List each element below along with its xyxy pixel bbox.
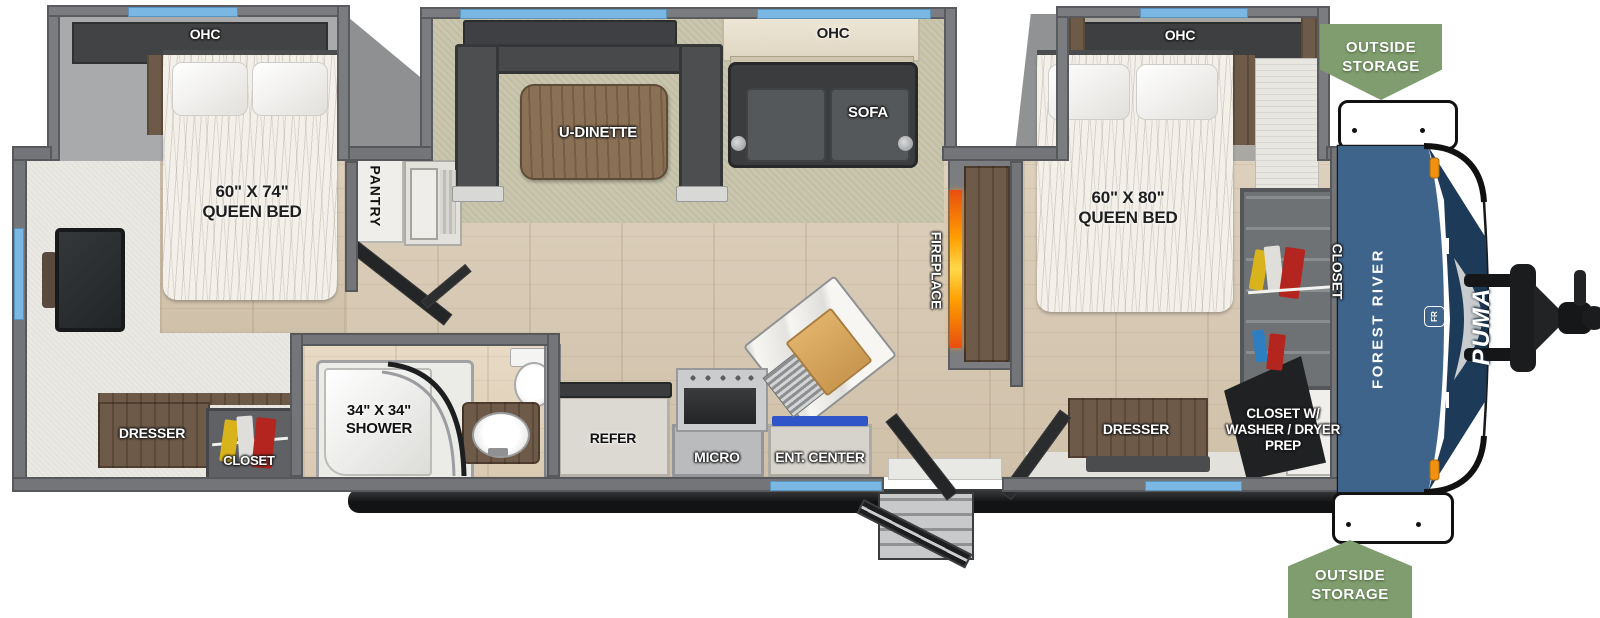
label-dresser-rear: DRESSER <box>92 425 212 442</box>
bed-front-side-panel <box>1255 58 1319 192</box>
slide-front-bed-wall-left <box>1056 6 1069 161</box>
slide-dinette-window-left <box>460 9 667 19</box>
dresser-front-bench <box>1086 456 1210 472</box>
dinette-bench-left <box>455 44 499 192</box>
outside-storage-bottom-line2: STORAGE <box>1311 586 1388 605</box>
label-ohc-sofa: OHC <box>783 25 883 43</box>
cap-plate-top-rivet-left <box>1352 128 1357 133</box>
label-pantry: PANTRY <box>367 151 384 241</box>
front-cap-brand: FOREST RIVER <box>1368 208 1388 428</box>
outside-storage-top-line1: OUTSIDE <box>1346 39 1416 58</box>
brand-logo-monogram: FR <box>1424 306 1445 327</box>
outside-storage-bottom-line1: OUTSIDE <box>1315 567 1385 586</box>
brand-dash-bottom <box>1446 392 1449 408</box>
bed-rear-nightstand <box>147 55 163 135</box>
dinette-bench-endcap-right <box>676 186 728 202</box>
tv-rear <box>55 228 125 332</box>
dinette-ohc-cabinet <box>463 20 677 46</box>
label-closet-rear: CLOSET <box>199 453 299 469</box>
wall-bathroom-top <box>290 333 560 346</box>
slide-rear-bed-window <box>128 7 238 17</box>
wall-bottom-seg1 <box>12 477 884 492</box>
outside-storage-top-line2: STORAGE <box>1342 58 1419 77</box>
cap-plate-top-rivet-right <box>1420 128 1425 133</box>
rv-floorplan: OHC 60" X 74" QUEEN BED PANTRY U-DINETTE… <box>0 0 1600 618</box>
refer-counter-flap <box>556 382 672 398</box>
label-wd-closet: CLOSET W/ WASHER / DRYER PREP <box>1203 406 1363 455</box>
label-refer: REFER <box>563 430 663 447</box>
outside-storage-badge-top: OUTSIDE STORAGE <box>1320 24 1442 100</box>
label-udinette: U-DINETTE <box>518 124 678 142</box>
pantry-door-panel <box>410 168 438 240</box>
bed-rear-pillow-right <box>252 62 328 116</box>
window-bottom-kitchen <box>770 481 882 491</box>
label-ohc-rear: OHC <box>155 26 255 43</box>
label-closet-front: CLOSET <box>1329 231 1346 311</box>
stove-cooktop <box>684 388 756 424</box>
slide-dinette-window-right <box>757 9 931 19</box>
window-bottom-bedroom <box>1145 481 1242 491</box>
sofa-cushion-right <box>830 88 910 162</box>
bed-rear-pillow-left <box>172 62 248 116</box>
label-sofa: SOFA <box>818 104 918 122</box>
slide-rear-bed-wall-right <box>337 5 350 161</box>
label-dresser-front: DRESSER <box>1076 421 1196 438</box>
cap-plate-bottom-rivet-left <box>1346 522 1351 527</box>
entertainment-center-accent <box>772 416 868 426</box>
label-ohc-front: OHC <box>1130 27 1230 44</box>
outside-storage-badge-bottom: OUTSIDE STORAGE <box>1288 540 1412 618</box>
wall-top-seg1 <box>12 146 52 161</box>
label-shower-size: 34" X 34" <box>309 402 449 420</box>
label-wd-line1: CLOSET W/ <box>1203 406 1363 422</box>
cap-plate-bottom-rivet-right <box>1416 522 1421 527</box>
fireplace-insert <box>950 190 962 348</box>
dinette-bench-right <box>679 44 723 192</box>
wall-bedroom-front <box>1010 161 1023 387</box>
wall-top-seg3 <box>942 146 1058 161</box>
brand-dash-top <box>1446 238 1449 254</box>
label-bed-front-name: QUEEN BED <box>1038 208 1218 228</box>
bed-front-pillow-right <box>1136 64 1218 120</box>
entertainment-wall-panel <box>964 166 1010 362</box>
label-bed-front: 60" X 80" QUEEN BED <box>1038 188 1218 229</box>
pantry-door-panel2 <box>440 170 456 234</box>
slide-front-bed-window <box>1140 8 1248 18</box>
label-bed-rear: 60" X 74" QUEEN BED <box>162 182 342 223</box>
label-wd-line3: PREP <box>1203 438 1363 454</box>
label-fireplace: FIREPLACE <box>928 220 945 320</box>
label-bed-front-size: 60" X 80" <box>1038 188 1218 208</box>
wall-bedroom-rear <box>345 161 358 292</box>
slide-rear-bed-wall-left <box>47 5 60 161</box>
wall-top-seg2 <box>348 146 433 161</box>
label-shower-name: SHOWER <box>309 420 449 438</box>
slide-rear-bed-3d-edge <box>337 8 425 160</box>
bathroom-faucet <box>488 448 508 456</box>
brand-model-text: PUMA <box>1468 256 1496 396</box>
dinette-bench-endcap-left <box>452 186 504 202</box>
chassis-frame-rail <box>348 489 1346 513</box>
slide-dinette-wall-left <box>420 7 433 161</box>
label-shower: 34" X 34" SHOWER <box>309 402 449 438</box>
label-wd-line2: WASHER / DRYER <box>1203 422 1363 438</box>
wall-bathroom-right <box>547 333 560 477</box>
label-ent-center: ENT. CENTER <box>750 449 890 466</box>
sofa-cupholder-right <box>898 136 913 151</box>
window-left-wall <box>14 228 24 320</box>
bed-front-wardrobe-strip <box>1233 55 1255 145</box>
sofa-cupholder-left <box>731 136 746 151</box>
brand-maker-text: FOREST RIVER <box>1370 219 1387 419</box>
slide-dinette-wall-right <box>944 7 957 161</box>
stove-knobs <box>686 373 756 383</box>
label-bed-rear-size: 60" X 74" <box>162 182 342 202</box>
sofa-cushion-left <box>746 88 826 162</box>
label-bed-rear-name: QUEEN BED <box>162 202 342 222</box>
